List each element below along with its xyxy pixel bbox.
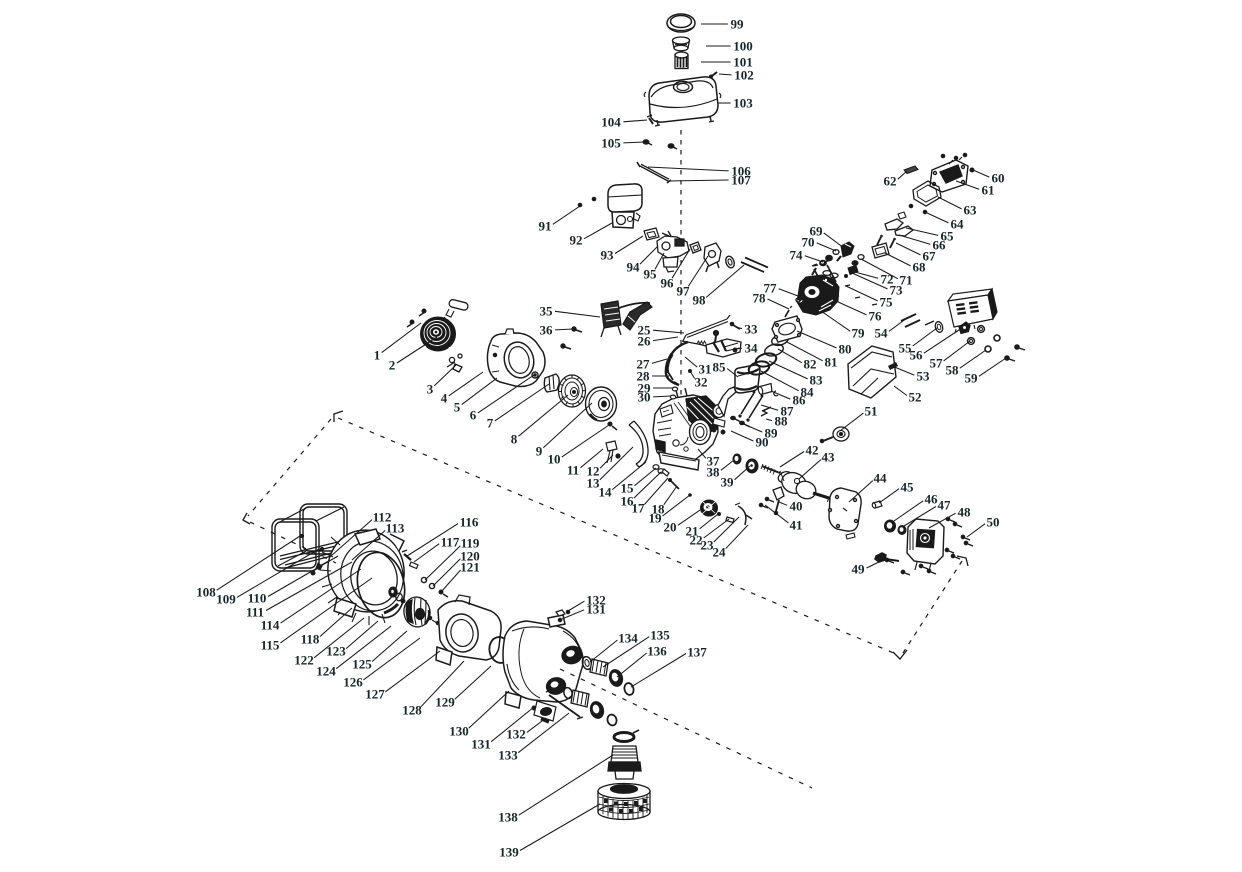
svg-text:103: 103 [733,96,753,111]
svg-text:58: 58 [946,363,960,378]
svg-text:48: 48 [958,505,972,520]
svg-text:131: 131 [471,737,491,752]
svg-text:98: 98 [693,293,707,308]
svg-text:47: 47 [938,498,952,513]
svg-text:35: 35 [540,304,554,319]
svg-text:45: 45 [901,480,915,495]
svg-text:59: 59 [965,371,979,386]
svg-text:6: 6 [470,408,477,423]
svg-text:44: 44 [874,471,888,486]
svg-text:62: 62 [884,174,897,189]
svg-text:105: 105 [601,136,621,151]
svg-text:96: 96 [661,276,675,291]
svg-text:2: 2 [389,358,396,373]
svg-text:61: 61 [982,183,995,198]
svg-text:94: 94 [627,260,641,275]
svg-text:24: 24 [713,545,727,560]
svg-text:99: 99 [731,17,745,32]
svg-text:26: 26 [638,334,652,349]
svg-text:57: 57 [930,356,944,371]
svg-text:11: 11 [567,463,579,478]
svg-text:113: 113 [386,521,405,536]
svg-text:100: 100 [733,39,753,54]
svg-text:78: 78 [753,291,767,306]
svg-text:86: 86 [793,393,807,408]
svg-text:118: 118 [301,632,320,647]
svg-text:130: 130 [449,724,469,739]
svg-text:122: 122 [294,653,314,668]
svg-text:39: 39 [721,475,735,490]
svg-text:68: 68 [913,260,927,275]
svg-text:132: 132 [506,727,526,742]
svg-text:136: 136 [647,644,667,659]
svg-text:97: 97 [677,284,691,299]
svg-text:90: 90 [756,435,769,450]
svg-text:138: 138 [498,810,518,825]
svg-text:134: 134 [618,631,638,646]
svg-text:49: 49 [852,562,866,577]
svg-text:93: 93 [601,248,615,263]
svg-text:10: 10 [548,452,561,467]
svg-text:8: 8 [511,432,518,447]
svg-text:81: 81 [825,355,838,370]
svg-text:43: 43 [822,450,836,465]
svg-text:32: 32 [695,375,708,390]
svg-text:115: 115 [261,638,280,653]
svg-text:79: 79 [852,326,866,341]
svg-text:85: 85 [713,360,727,375]
svg-text:41: 41 [790,518,803,533]
svg-text:20: 20 [664,520,677,535]
svg-text:33: 33 [745,322,759,337]
svg-text:102: 102 [734,68,754,83]
svg-text:36: 36 [540,323,554,338]
svg-text:30: 30 [638,390,651,405]
svg-text:38: 38 [707,465,721,480]
svg-text:75: 75 [880,295,894,310]
svg-text:53: 53 [917,369,931,384]
svg-text:5: 5 [454,400,461,415]
svg-text:109: 109 [216,592,236,607]
svg-text:77: 77 [764,281,778,296]
svg-text:127: 127 [365,687,385,702]
svg-text:40: 40 [790,499,803,514]
svg-text:114: 114 [261,618,280,633]
svg-text:50: 50 [987,515,1000,530]
svg-text:1: 1 [374,348,381,363]
svg-text:132: 132 [586,593,606,608]
svg-text:17: 17 [632,501,646,516]
svg-text:92: 92 [570,233,583,248]
svg-text:82: 82 [804,357,817,372]
svg-text:7: 7 [487,416,494,431]
svg-text:133: 133 [498,748,518,763]
svg-text:14: 14 [599,485,613,500]
svg-text:63: 63 [964,203,978,218]
svg-text:34: 34 [745,341,759,356]
svg-text:139: 139 [499,845,519,860]
svg-text:121: 121 [460,560,480,575]
svg-text:123: 123 [326,644,346,659]
svg-text:125: 125 [352,657,372,672]
svg-text:9: 9 [536,444,543,459]
svg-text:19: 19 [649,511,663,526]
svg-text:46: 46 [925,492,939,507]
svg-text:3: 3 [427,382,434,397]
svg-text:124: 124 [316,664,336,679]
svg-text:91: 91 [539,219,552,234]
svg-text:51: 51 [865,404,878,419]
svg-text:128: 128 [402,703,422,718]
svg-text:80: 80 [839,342,852,357]
svg-text:135: 135 [650,628,670,643]
svg-text:108: 108 [196,585,216,600]
svg-text:95: 95 [644,267,658,282]
svg-text:4: 4 [441,391,448,406]
svg-text:54: 54 [875,326,889,341]
svg-text:52: 52 [909,390,922,405]
svg-text:116: 116 [460,515,479,530]
svg-text:104: 104 [601,115,621,130]
svg-text:110: 110 [248,591,267,606]
svg-text:126: 126 [343,675,363,690]
svg-text:117: 117 [441,535,460,550]
svg-text:76: 76 [869,309,883,324]
svg-text:107: 107 [731,173,751,188]
svg-text:70: 70 [802,235,815,250]
svg-text:137: 137 [687,645,707,660]
svg-text:42: 42 [806,443,819,458]
svg-text:74: 74 [790,248,804,263]
svg-text:129: 129 [435,695,455,710]
svg-text:56: 56 [910,348,924,363]
